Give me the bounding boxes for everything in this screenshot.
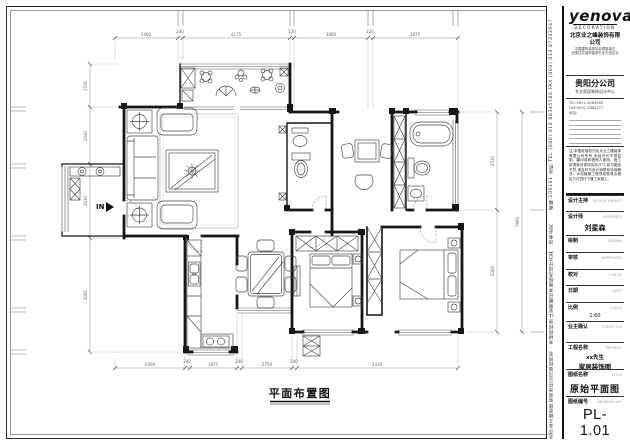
plan-title: 平面布置图 (269, 386, 332, 404)
company-contact-vertical: 邮编:100101 总机 TEL (060) 010 88345566 FAX … (549, 10, 555, 210)
project-client: xx先生 (568, 353, 622, 361)
closet-strip (394, 116, 405, 208)
company-subtitle-2: 全国住宅装饰装修行业先进企业 (569, 51, 621, 55)
dimension-ticks (88, 36, 524, 370)
row-drawn: 绘制DRAWN (566, 235, 624, 252)
entry-label: IN (96, 203, 105, 211)
row-designer: 设计师DESIGNER 刘星森 (566, 211, 624, 235)
scale-value: 1:60 (568, 313, 622, 319)
svg-text:3530: 3530 (490, 155, 495, 166)
row-approved: 审核APPROVED (566, 252, 624, 269)
sheet-title: 原始平面图 (568, 382, 622, 395)
bathroom-small (292, 128, 310, 178)
study-room (341, 140, 393, 190)
door-swings (124, 196, 436, 252)
title-block-side-strip: 邮编:100101 总机 TEL (060) 010 88345566 FAX … (547, 6, 564, 439)
svg-text:220: 220 (366, 29, 374, 34)
svg-text:240: 240 (183, 359, 191, 364)
notes-section: 注:本图纸版权归北京业之峰装饰有限公司所有,未经许可不得复制、翻印或转借他人使用… (566, 147, 624, 195)
svg-text:3410: 3410 (372, 362, 383, 367)
entry-console (70, 167, 120, 200)
drawing-notes: 注:本图纸版权归北京业之峰装饰有限公司所有,未经许可不得复制、翻印或转借他人使用… (569, 149, 621, 181)
contact-section: TEL:0851-5864566 FAX:0851-5864577 地址: (566, 99, 624, 147)
sheet-number: PL-1.01 (568, 407, 622, 439)
row-design-director: 设计主持DESIGN DIRECT (566, 195, 624, 211)
coffee-table (166, 150, 218, 192)
svg-text:7960: 7960 (515, 216, 520, 227)
entry-arrow: IN (96, 202, 114, 212)
drawing-sheet: 2460 240 4175 120 3060 220 1875 2400 240… (0, 0, 630, 445)
kitchen (187, 240, 233, 348)
row-project-name: 工程名称PROJECT xx先生 家居装饰图 (566, 342, 624, 369)
svg-text:2630: 2630 (83, 195, 88, 206)
brand-logo-sub: DECORATION (573, 24, 617, 30)
svg-text:4360: 4360 (490, 265, 495, 276)
svg-text:4060: 4060 (83, 289, 88, 300)
designer-name: 刘星森 (568, 223, 622, 233)
svg-text:1875: 1875 (208, 362, 219, 367)
row-sheet-number: 图纸编号DRAWING NO PL-1.01 (566, 396, 624, 439)
svg-text:3060: 3060 (326, 32, 337, 37)
phone-line: TEL:0851-5864566 FAX:0851-5864577 (569, 101, 621, 111)
copyright-vertical: 北京业之峰装饰有限责任公司版权所有 · 未经授权禁止复制翻印本图纸及设计方案 ·… (549, 214, 555, 439)
floor-plan: 2460 240 4175 120 3060 220 1875 2400 240… (0, 0, 548, 445)
row-scale: 比例SCALE 1:60 (566, 302, 624, 321)
brand-logo: yenova (569, 8, 621, 24)
bedroom-2 (367, 227, 460, 312)
side-table (127, 110, 152, 227)
svg-text:1530: 1530 (83, 80, 88, 91)
row-check: 校对CHECK (566, 269, 624, 286)
svg-text:120: 120 (288, 29, 296, 34)
bedroom-1 (294, 236, 363, 307)
duct-shaft (303, 336, 320, 356)
title-block: 邮编:100101 总机 TEL (060) 010 88345566 FAX … (546, 6, 624, 439)
svg-text:4175: 4175 (231, 32, 242, 37)
branch-name: 贵阳分公司 (569, 78, 621, 89)
branch-subtitle: 专业家居装饰设计中心 (569, 89, 621, 94)
svg-text:240: 240 (176, 29, 184, 34)
row-sheet-title: 图纸名称TITLE 原始平面图 (566, 369, 624, 396)
svg-text:2750: 2750 (262, 362, 273, 367)
branch-section: 贵阳分公司 专业家居装饰设计中心 (566, 76, 624, 100)
svg-text:2040: 2040 (83, 130, 88, 141)
company-name: 北京业之峰装饰有限公司 (569, 33, 621, 47)
dining-set (236, 240, 296, 308)
sofa (127, 136, 158, 200)
balcony-plants (181, 68, 288, 101)
dimension-text: 2460 240 4175 120 3060 220 1875 2400 240… (83, 29, 520, 367)
logo-section: yenova DECORATION 北京业之峰装饰有限公司 中国建筑装饰协会理事… (566, 6, 624, 76)
svg-text:240: 240 (235, 359, 243, 364)
svg-text:240: 240 (290, 359, 298, 364)
plan-title-text: 平面布置图 (269, 386, 332, 400)
svg-text:2460: 2460 (141, 32, 152, 37)
row-owner-confirm: 业主确认TUENTITLE (566, 321, 624, 342)
svg-text:2400: 2400 (145, 362, 156, 367)
row-date: 日期DATE (566, 285, 624, 302)
bathroom-master (408, 122, 453, 201)
dimension-lines (90, 38, 522, 368)
svg-text:1875: 1875 (410, 32, 421, 37)
